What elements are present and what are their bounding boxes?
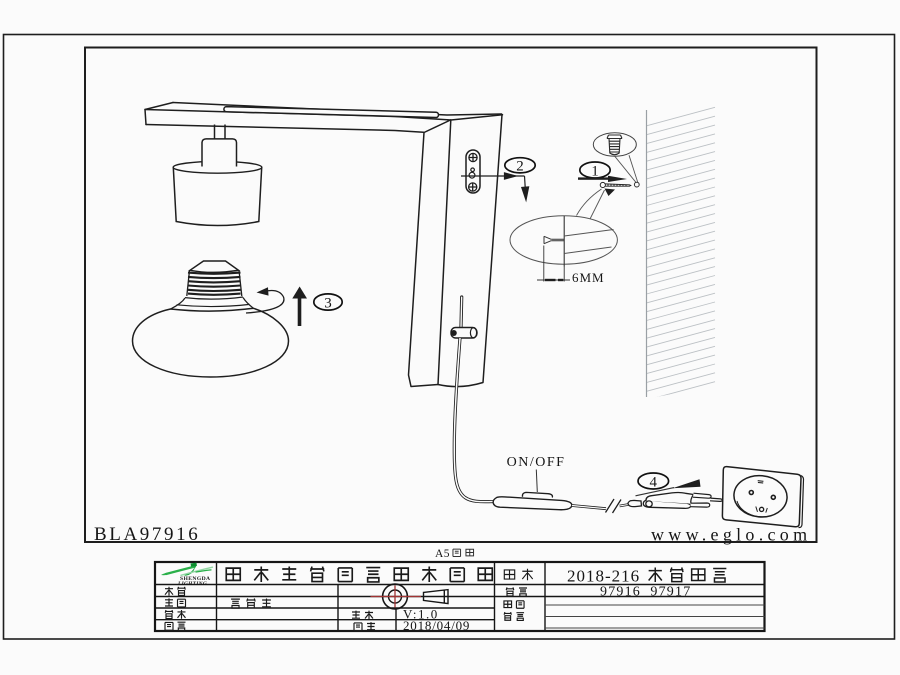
svg-text:ON/OFF: ON/OFF xyxy=(507,455,566,470)
svg-text:1: 1 xyxy=(591,163,599,179)
svg-text:2018-216: 2018-216 xyxy=(567,567,640,586)
svg-text:2: 2 xyxy=(516,159,524,175)
svg-text:97916 97917: 97916 97917 xyxy=(600,585,691,600)
svg-text:4: 4 xyxy=(650,474,658,490)
svg-text:BLA97916: BLA97916 xyxy=(94,524,200,545)
svg-text:6MM: 6MM xyxy=(572,270,605,285)
svg-text:3: 3 xyxy=(324,295,332,311)
svg-text:LIGHTING: LIGHTING xyxy=(177,581,207,587)
svg-text:A5: A5 xyxy=(435,548,450,560)
svg-text:2018/04/09: 2018/04/09 xyxy=(403,618,470,633)
svg-text:www.eglo.com: www.eglo.com xyxy=(651,525,811,545)
